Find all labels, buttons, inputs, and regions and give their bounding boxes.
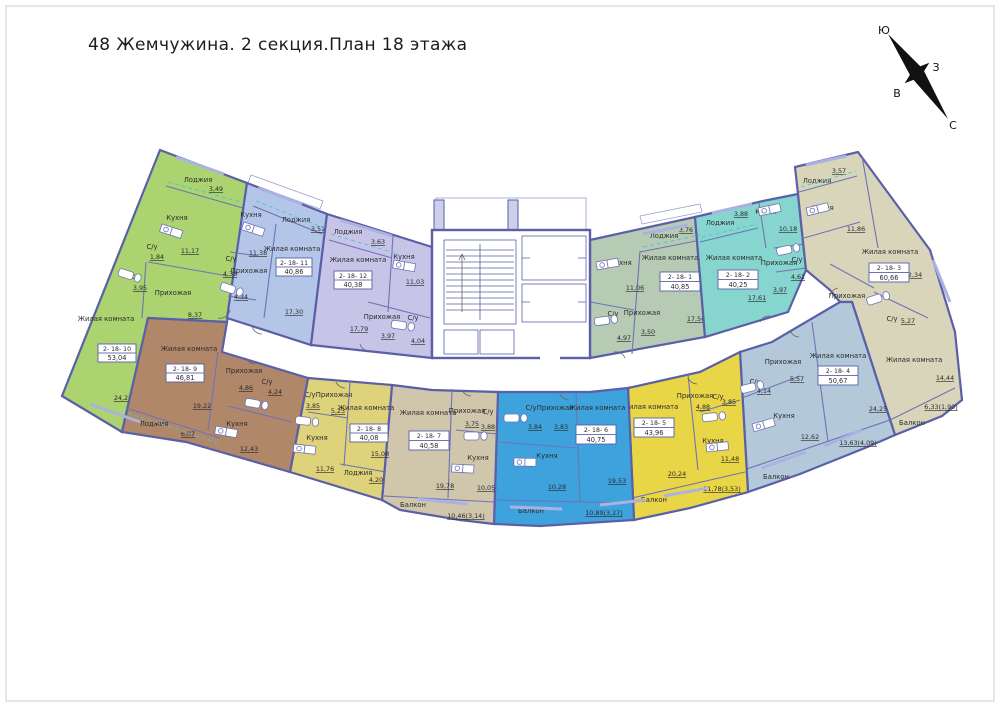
- area-label: 11,17: [181, 247, 199, 255]
- apartment-id: 2- 18- 10: [103, 346, 131, 353]
- room-label: Прихожая: [829, 292, 865, 300]
- area-label: 4,24: [268, 388, 282, 396]
- core-walls: [432, 230, 590, 358]
- apartment-total-area: 40,58: [420, 442, 439, 450]
- area-label: 3,63: [371, 238, 385, 246]
- compass-west-label: З: [932, 61, 939, 74]
- area-label: 13,63(4,09): [839, 439, 877, 447]
- area-label: 11,78(3,53): [703, 485, 741, 493]
- room-label: Жилая комната: [642, 254, 699, 262]
- room-label: Прихожая: [155, 289, 191, 297]
- apartment-id: 2- 18- 4: [826, 368, 850, 375]
- area-label: 4,20: [369, 476, 383, 484]
- area-label: 4,04: [411, 337, 425, 345]
- area-label: 3,95: [133, 284, 147, 292]
- apartment-total-area: 46,81: [176, 374, 195, 382]
- area-label: 10,05: [477, 484, 495, 492]
- vent-duct: [508, 200, 518, 230]
- apartment-id: 2- 18- 6: [584, 427, 608, 434]
- area-label: 3,85: [306, 402, 320, 410]
- room-label: С/у: [791, 256, 802, 264]
- room-label: Жилая комната: [622, 403, 679, 411]
- room-label: Жилая комната: [862, 248, 919, 256]
- area-label: 4,61: [791, 273, 805, 281]
- area-label: 10,28: [548, 483, 566, 491]
- apartment-id: 2- 18- 5: [642, 420, 666, 427]
- bathroom-fixture-icon: [504, 414, 527, 422]
- room-label: Жилая комната: [810, 352, 867, 360]
- apartment-2-18-5: Жилая комната 20,24 Прихожая 4,88 С/у 3,…: [622, 352, 748, 520]
- area-label: 3,83: [554, 423, 568, 431]
- stair-core: [432, 198, 590, 358]
- area-label: 14,44: [936, 374, 954, 382]
- room-label: Балкон: [763, 473, 789, 481]
- room-label: Жилая комната: [338, 404, 395, 412]
- area-label: 4,97: [617, 334, 631, 342]
- room-label: Кухня: [166, 214, 187, 222]
- room-label: Прихожая: [226, 367, 262, 375]
- vent-duct: [434, 200, 444, 230]
- apartment-total-area: 40,25: [729, 281, 748, 289]
- apartment-total-area: 40,85: [671, 283, 690, 291]
- area-label: 17,61: [748, 294, 766, 302]
- area-label: 1,84: [150, 253, 164, 261]
- area-label: 3,97: [381, 332, 395, 340]
- room-label: Лоджия: [140, 420, 169, 428]
- room-label: Жилая комната: [706, 254, 763, 262]
- apartment-id: 2- 18- 8: [357, 426, 381, 433]
- area-label: 10,89(3,27): [585, 509, 623, 517]
- area-label: 4,88: [696, 403, 710, 411]
- area-label: 3,84: [528, 423, 542, 431]
- area-label: 17,79: [350, 325, 368, 333]
- area-label: 19,78: [436, 482, 454, 490]
- compass-rose: Ю З В С: [878, 24, 957, 132]
- apartment-total-area: 40,08: [360, 434, 379, 442]
- room-label: С/у: [225, 255, 236, 263]
- apartment-total-area: 40,86: [285, 268, 304, 276]
- area-label: 3,75: [465, 420, 479, 428]
- apartment-total-area: 50,67: [829, 377, 848, 385]
- room-label: Жилая комната: [78, 315, 135, 323]
- area-label: 5,57: [790, 375, 804, 383]
- area-label: 12,62: [801, 433, 819, 441]
- area-label: 11,06: [626, 284, 644, 292]
- area-label: 10,18: [779, 225, 797, 233]
- area-label: 3,88: [481, 423, 495, 431]
- room-label: Кухня: [536, 452, 557, 460]
- apartment-2-18-12: Лоджия 3,63 Жилая комната 17,79 Кухня 11…: [311, 214, 432, 358]
- room-label: С/у: [261, 378, 272, 386]
- area-label: 12,43: [240, 445, 258, 453]
- room-label: Кухня: [393, 253, 414, 261]
- room-label: Лоджия: [803, 177, 832, 185]
- apartment-2-18-6: Жилая комната 19,53 Прихожая 3,83 С/у 3,…: [494, 388, 634, 526]
- area-label: 3,57: [832, 167, 846, 175]
- room-label: Кухня: [773, 412, 794, 420]
- room-label: Прихожая: [449, 407, 485, 415]
- apartment-2-18-2: Кухня 10,18 Лоджия 3,88 Жилая комната 17…: [695, 194, 806, 337]
- room-label: Кухня: [306, 434, 327, 442]
- room-label: Кухня: [226, 420, 247, 428]
- area-label: 8,37: [188, 311, 202, 319]
- area-label: 4,86: [239, 384, 253, 392]
- room-label: Прихожая: [364, 313, 400, 321]
- kitchen-counter-icon: [452, 464, 474, 473]
- compass-south-label: Ю: [878, 24, 890, 37]
- area-label: 3,50: [641, 328, 655, 336]
- area-label: 3,88: [734, 210, 748, 218]
- room-label: Жилая комната: [886, 356, 943, 364]
- apartment-id: 2- 18- 2: [726, 272, 750, 279]
- area-label: 10,46(3,14): [447, 512, 485, 520]
- apartment-2-18-1: Кухня 11,06 Лоджия 3,76 Жилая комната 17…: [590, 217, 705, 358]
- room-label: С/у: [407, 314, 418, 322]
- room-label: Лоджия: [706, 219, 735, 227]
- room-label: Кухня: [467, 454, 488, 462]
- room-label: Прихожая: [677, 392, 713, 400]
- room-label: Жилая комната: [569, 404, 626, 412]
- room-label: Прихожая: [537, 404, 573, 412]
- compass-north-label: С: [949, 119, 957, 132]
- room-label: С/у: [482, 408, 493, 416]
- apartment-2-18-8: Прихожая 5,23 С/у 3,85 Кухня 11,76 Жилая…: [290, 378, 394, 500]
- area-label: 17,30: [285, 308, 303, 316]
- room-label: Жилая комната: [330, 256, 387, 264]
- area-label: 15,08: [371, 450, 389, 458]
- apartment-2-18-9: Жилая комната 19,22 Прихожая 4,86 С/у 4,…: [122, 318, 308, 472]
- area-label: 19,53: [608, 477, 626, 485]
- apartment-id: 2- 18- 9: [173, 366, 197, 373]
- kitchen-counter-icon: [514, 458, 536, 466]
- room-label: Балкон: [400, 501, 426, 509]
- apartment-id: 2- 18- 1: [668, 274, 692, 281]
- area-label: 11,86: [847, 225, 865, 233]
- room-label: С/у: [525, 404, 536, 412]
- room-label: Кухня: [240, 211, 261, 219]
- plan-title: 48 Жемчужина. 2 секция.План 18 этажа: [88, 35, 467, 55]
- compass-east-label: В: [893, 87, 901, 100]
- apartment-total-area: 53,04: [108, 354, 127, 362]
- room-label: Прихожая: [231, 267, 267, 275]
- area-label: 3,51: [311, 225, 325, 233]
- room-label: С/у: [146, 243, 157, 251]
- apartment-id: 2- 18- 11: [280, 260, 308, 267]
- area-label: 11,48: [721, 455, 739, 463]
- apartment-id: 2- 18- 7: [417, 433, 441, 440]
- area-label: 3,49: [209, 185, 223, 193]
- apartment-total-area: 43,96: [645, 429, 664, 437]
- apartment-id: 2- 18- 12: [339, 273, 367, 280]
- area-label: 11,76: [316, 465, 334, 473]
- room-label: Прихожая: [624, 309, 660, 317]
- area-label: 3,97: [773, 286, 787, 294]
- bathroom-fixture-icon: [464, 432, 487, 440]
- area-label: 11,03: [406, 278, 424, 286]
- area-label: 24,25: [869, 405, 887, 413]
- area-label: 6,33(1,90): [924, 403, 957, 411]
- area-label: 19,22: [193, 402, 211, 410]
- room-label: Жилая комната: [161, 345, 218, 353]
- apartment-total-area: 40,75: [587, 436, 606, 444]
- floor-plan-sheet: 48 Жемчужина. 2 секция.План 18 этажа Ю З…: [0, 0, 1000, 707]
- room-label: Прихожая: [765, 358, 801, 366]
- room-label: С/у: [886, 315, 897, 323]
- apartment-2-18-7: Жилая комната 19,78 Прихожая 3,75 С/у 3,…: [382, 385, 498, 524]
- room-label: Жилая комната: [264, 245, 321, 253]
- room-label: Прихожая: [316, 391, 352, 399]
- apartment-total-area: 40,38: [344, 281, 363, 289]
- room-label: Балкон: [899, 419, 925, 427]
- room-label: Лоджия: [334, 228, 363, 236]
- apartment-total-area: 60,66: [880, 274, 899, 282]
- room-label: Лоджия: [184, 176, 213, 184]
- area-label: 3,85: [722, 398, 736, 406]
- area-label: 5,27: [901, 317, 915, 325]
- area-label: 20,24: [668, 470, 686, 478]
- apartment-id: 2- 18- 3: [877, 265, 901, 272]
